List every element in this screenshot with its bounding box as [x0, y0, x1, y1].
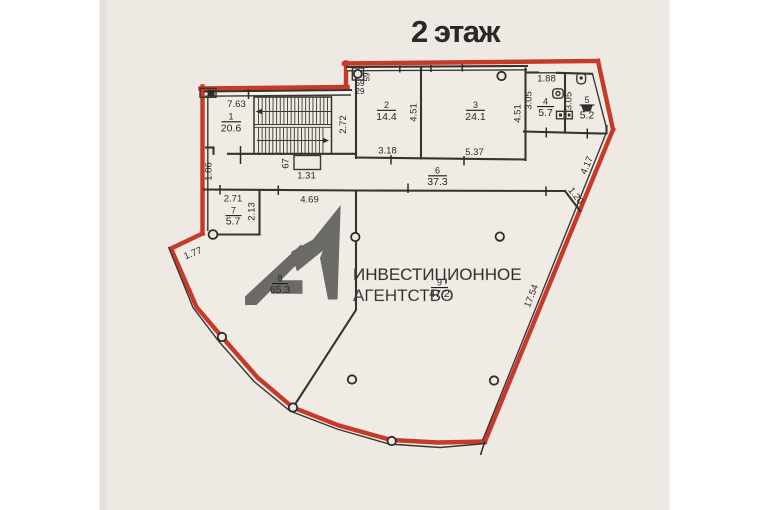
svg-text:4.51: 4.51	[409, 103, 420, 122]
svg-text:5: 5	[584, 95, 589, 105]
svg-text:2.72: 2.72	[338, 115, 349, 134]
svg-text:7.63: 7.63	[227, 99, 246, 110]
svg-text:5.37: 5.37	[465, 147, 484, 158]
svg-text:47.2: 47.2	[429, 288, 450, 300]
svg-text:9: 9	[437, 278, 442, 288]
svg-text:3.05: 3.05	[524, 91, 535, 110]
svg-text:24.1: 24.1	[465, 111, 486, 123]
svg-text:2.13: 2.13	[247, 202, 258, 221]
svg-text:14.4: 14.4	[376, 111, 397, 123]
svg-text:1: 1	[228, 112, 233, 122]
svg-text:65.3: 65.3	[270, 284, 291, 296]
svg-text:6: 6	[435, 166, 440, 176]
svg-text:20.6: 20.6	[221, 123, 242, 135]
svg-text:4.69: 4.69	[300, 195, 319, 206]
svg-text:67: 67	[281, 158, 292, 169]
svg-text:2 этаж: 2 этаж	[411, 14, 501, 49]
svg-text:3.18: 3.18	[378, 146, 397, 157]
svg-text:2.71: 2.71	[224, 194, 243, 205]
svg-text:1.86: 1.86	[204, 162, 215, 181]
svg-text:4: 4	[543, 97, 548, 107]
svg-text:2: 2	[384, 100, 389, 110]
svg-text:7: 7	[231, 206, 236, 216]
svg-text:4.51: 4.51	[513, 104, 524, 123]
svg-text:8: 8	[277, 274, 282, 284]
svg-text:5.7: 5.7	[226, 216, 241, 228]
svg-text:37.3: 37.3	[427, 176, 448, 188]
svg-text:5.7: 5.7	[538, 107, 553, 119]
svg-text:5.2: 5.2	[580, 110, 595, 122]
svg-text:3.05: 3.05	[564, 92, 575, 111]
svg-text:3: 3	[473, 100, 478, 110]
svg-text:1.31: 1.31	[297, 171, 316, 182]
svg-text:1.88: 1.88	[537, 74, 556, 85]
svg-text:29: 29	[356, 87, 365, 96]
